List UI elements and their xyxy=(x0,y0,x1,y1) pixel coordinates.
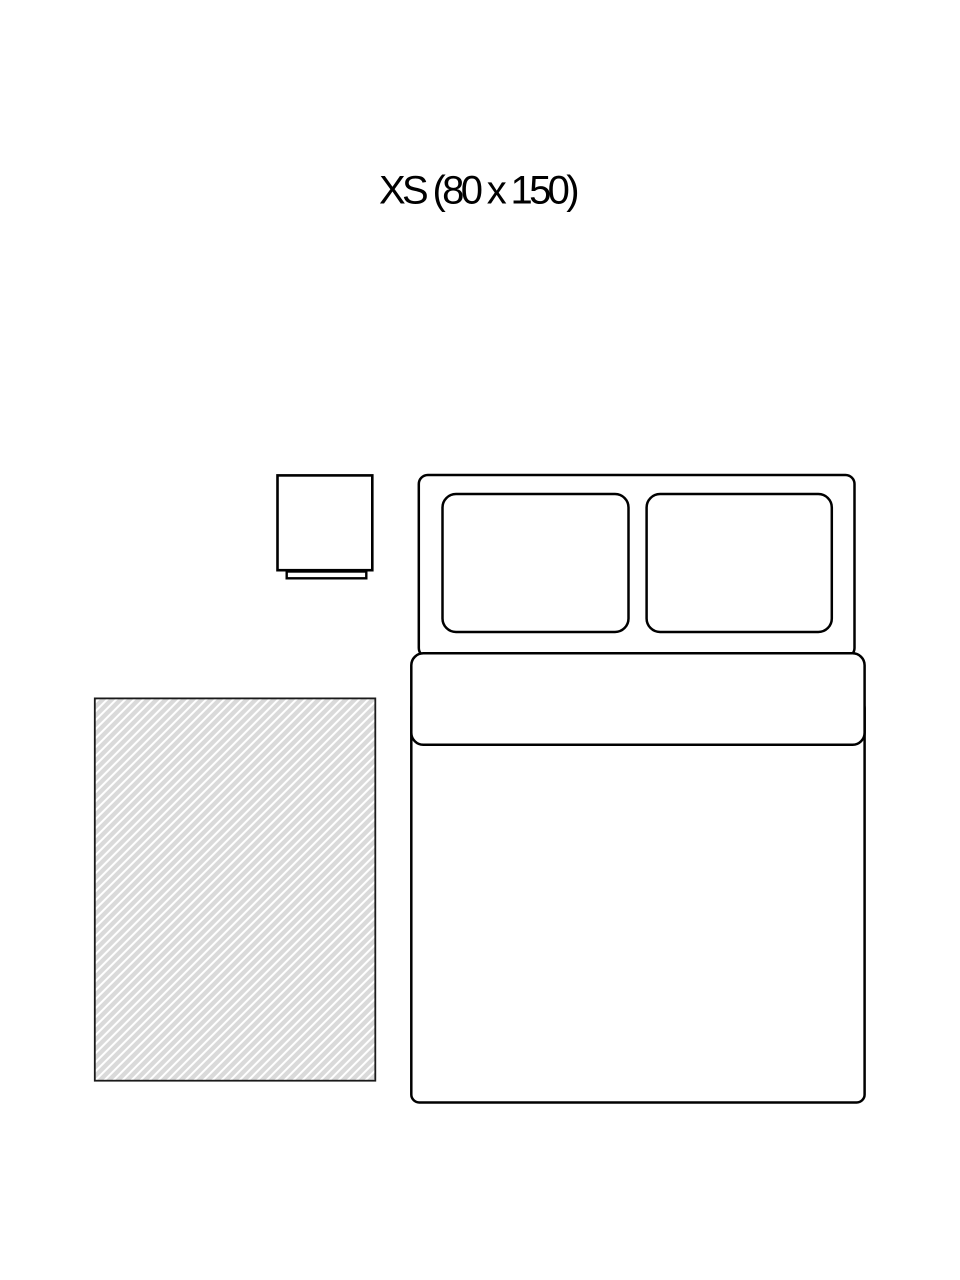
svg-text:XS (80 x 150): XS (80 x 150) xyxy=(379,169,580,213)
